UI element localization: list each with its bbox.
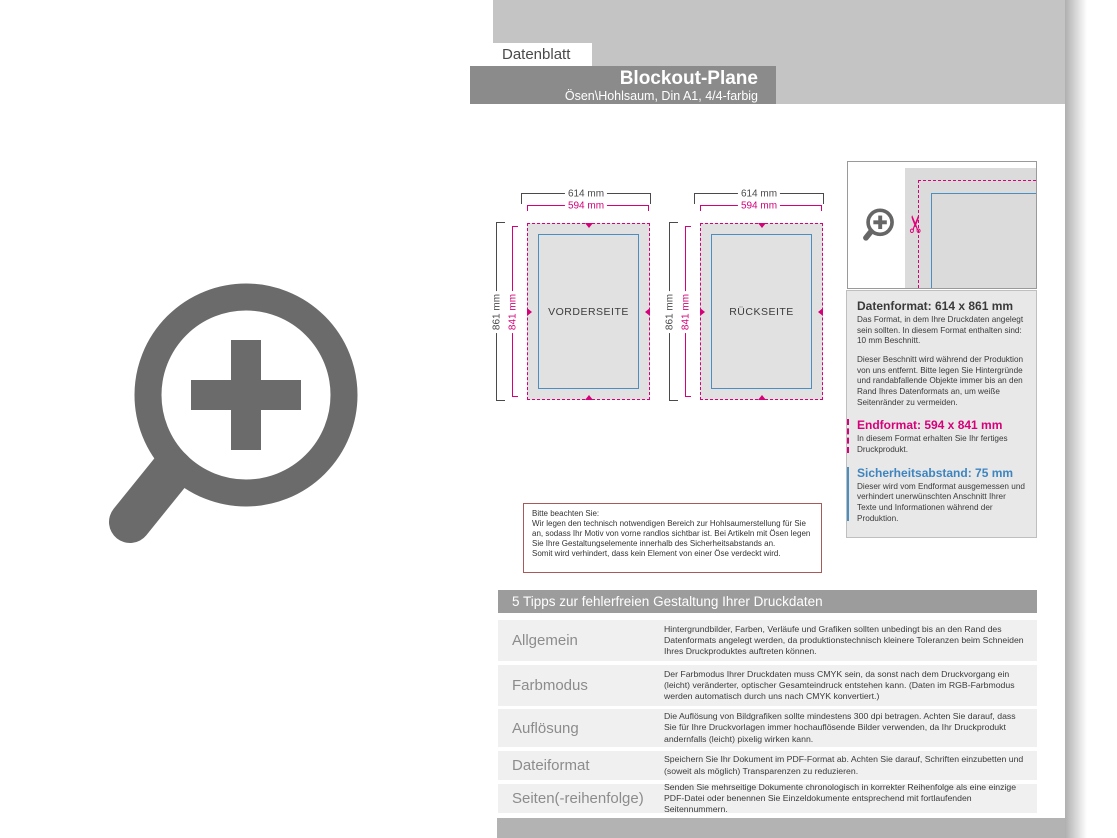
endformat-edge-line <box>847 419 849 452</box>
tip-text: Die Auflösung von Bildgrafiken sollte mi… <box>664 711 1029 744</box>
format-box: RÜCKSEITE <box>700 223 823 400</box>
side-label: VORDERSEITE <box>528 306 649 318</box>
datenformat-body1: Das Format, in dem Ihre Druckdaten angel… <box>857 315 1026 347</box>
title-bar: Blockout-Plane Ösen\Hohlsaum, Din A1, 4/… <box>470 66 776 104</box>
page-shadow <box>1065 0 1087 838</box>
tip-label: Dateiformat <box>512 757 664 774</box>
tip-row-aufloesung: Auflösung Die Auflösung von Bildgrafiken… <box>498 709 1037 747</box>
sicherheitsabstand-edge-line <box>847 467 849 522</box>
corner-detail-box: ✂ <box>847 161 1037 289</box>
safety-line-solid <box>931 193 1036 288</box>
scissors-icon: ✂ <box>905 214 930 234</box>
section-endformat: Endformat: 594 x 841 mm In diesem Format… <box>857 418 1026 455</box>
sicherheitsabstand-body: Dieser wird vom Endformat ausgemessen un… <box>857 482 1026 525</box>
tab-label: Datenblatt <box>502 46 570 63</box>
tip-label: Auflösung <box>512 720 664 737</box>
magnifier-plus-icon <box>100 278 358 556</box>
page-subtitle: Ösen\Hohlsaum, Din A1, 4/4-farbig <box>470 89 758 103</box>
note-body2: Somit wird verhindert, dass kein Element… <box>532 549 813 559</box>
tip-text: Senden Sie mehrseitige Dokumente chronol… <box>664 782 1029 815</box>
edge-marker-top <box>585 223 593 228</box>
dim-label-end-width: 594 mm <box>565 201 607 212</box>
magnifier-plus-icon-small <box>862 208 894 242</box>
side-label: RÜCKSEITE <box>701 306 822 318</box>
tip-row-farbmodus: Farbmodus Der Farbmodus Ihrer Druckdaten… <box>498 665 1037 706</box>
diagram-front: 614 mm 594 mm 861 mm 841 mm VORDERSEITE <box>494 186 656 404</box>
tip-text: Hintergrundbilder, Farben, Verläufe und … <box>664 624 1029 657</box>
datasheet-page: Datenblatt Blockout-Plane Ösen\Hohlsaum,… <box>0 0 1117 838</box>
edge-marker-left <box>700 308 705 316</box>
dim-label-outer-height: 861 mm <box>665 291 676 333</box>
section-datenformat: Datenformat: 614 x 861 mm Das Format, in… <box>857 299 1026 408</box>
sicherheitsabstand-heading: Sicherheitsabstand: 75 mm <box>857 466 1026 480</box>
page-title: Blockout-Plane <box>470 69 758 89</box>
tip-row-seitenreihenfolge: Seiten(-reihenfolge) Senden Sie mehrseit… <box>498 784 1037 813</box>
format-info-panel: Datenformat: 614 x 861 mm Das Format, in… <box>846 290 1037 538</box>
tip-row-dateiformat: Dateiformat Speichern Sie Ihr Dokument i… <box>498 751 1037 780</box>
tip-label: Allgemein <box>512 632 664 649</box>
tip-label: Seiten(-reihenfolge) <box>512 790 664 807</box>
edge-marker-bottom <box>758 395 766 400</box>
tip-text: Der Farbmodus Ihrer Druckdaten muss CMYK… <box>664 669 1029 702</box>
section-sicherheitsabstand: Sicherheitsabstand: 75 mm Dieser wird vo… <box>857 466 1026 525</box>
tip-row-allgemein: Allgemein Hintergrundbilder, Farben, Ver… <box>498 620 1037 661</box>
diagram-back: 614 mm 594 mm 861 mm 841 mm RÜCKSEITE <box>667 186 829 404</box>
edge-marker-left <box>527 308 532 316</box>
page-corner-mock: ✂ <box>905 168 1036 288</box>
footer-bar <box>497 818 1065 838</box>
dim-label-outer-width: 614 mm <box>565 189 607 200</box>
dim-label-end-height: 841 mm <box>508 291 519 333</box>
edge-marker-bottom <box>585 395 593 400</box>
dim-label-outer-width: 614 mm <box>738 189 780 200</box>
dim-label-end-height: 841 mm <box>681 291 692 333</box>
datenformat-heading: Datenformat: 614 x 861 mm <box>857 299 1026 313</box>
dim-label-outer-height: 861 mm <box>492 291 503 333</box>
edge-marker-right <box>645 308 650 316</box>
note-title: Bitte beachten Sie: <box>532 509 813 519</box>
tip-text: Speichern Sie Ihr Dokument im PDF-Format… <box>664 754 1029 776</box>
tips-section-header: 5 Tipps zur fehlerfreien Gestaltung Ihre… <box>498 590 1037 613</box>
datenformat-body2: Dieser Beschnitt wird während der Produk… <box>857 355 1026 408</box>
note-box: Bitte beachten Sie: Wir legen den techni… <box>523 503 822 573</box>
endformat-body: In diesem Format erhalten Sie Ihr fertig… <box>857 434 1026 455</box>
edge-marker-right <box>818 308 823 316</box>
datenblatt-tab: Datenblatt <box>493 43 592 66</box>
tip-label: Farbmodus <box>512 677 664 694</box>
endformat-heading: Endformat: 594 x 841 mm <box>857 418 1026 432</box>
note-body1: Wir legen den technisch notwendigen Bere… <box>532 519 813 549</box>
edge-marker-top <box>758 223 766 228</box>
dim-label-end-width: 594 mm <box>738 201 780 212</box>
format-box: VORDERSEITE <box>527 223 650 400</box>
